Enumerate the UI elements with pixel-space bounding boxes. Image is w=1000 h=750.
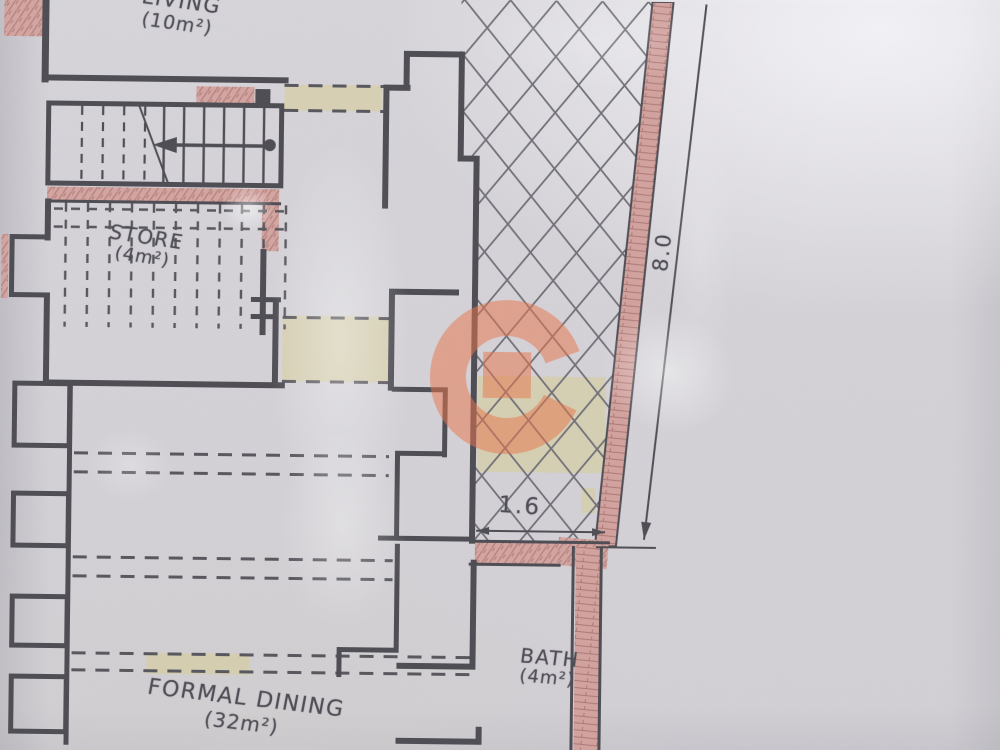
plan-drawing: LIVING (10m²) STORE (4m²) FORMAL DINING … (0, 0, 1000, 750)
photo-grain (0, 0, 1000, 750)
floor-plan-photo: LIVING (10m²) STORE (4m²) FORMAL DINING … (0, 0, 1000, 750)
dimension-text-1-6: 1.6 (498, 492, 542, 521)
plan-linework (0, 0, 1000, 750)
dimension-text-8-0: 8.0 (648, 231, 676, 273)
